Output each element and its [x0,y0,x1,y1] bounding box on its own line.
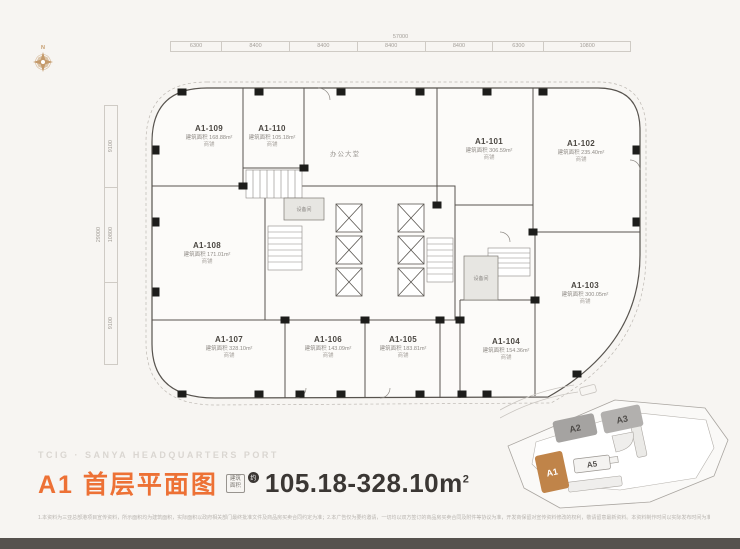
approx-badge: 约 [248,472,259,483]
bottom-bar [0,538,740,549]
unit-number: A1-108 [162,241,252,251]
unit-type: 商铺 [461,355,551,362]
page-title: A1 首层平面图 [38,465,218,501]
equipment-room-label: 设备间 [473,275,488,282]
brand-line: TCIG · SANYA HEADQUARTERS PORT [38,450,718,460]
unit-type: 商铺 [227,142,317,149]
unit-label-a1-102: A1-102 建筑面积 235.40m² 商铺 [536,139,626,164]
unit-area: 建筑面积 154.36m² [461,348,551,355]
unit-area: 建筑面积 235.40m² [536,150,626,157]
unit-label-a1-107: A1-107 建筑面积 328.10m² 商铺 [184,335,274,360]
unit-area: 建筑面积 328.10m² [184,346,274,353]
unit-label-a1-108: A1-108 建筑面积 171.01m² 商铺 [162,241,252,266]
unit-number: A1-110 [227,124,317,134]
unit-number: A1-101 [444,137,534,147]
lobby-label: 办公大堂 [330,149,360,158]
footer: TCIG · SANYA HEADQUARTERS PORT A1 首层平面图 … [38,450,718,521]
floor-plan-page: N 57000 6300 8400 8400 8400 8400 6300 10… [0,0,740,549]
unit-label-a1-101: A1-101 建筑面积 306.59m² 商铺 [444,137,534,162]
unit-type: 商铺 [184,353,274,360]
unit-area: 建筑面积 171.01m² [162,252,252,259]
unit-area: 建筑面积 300.05m² [540,292,630,299]
unit-label-a1-104: A1-104 建筑面积 154.36m² 商铺 [461,337,551,362]
unit-number: A1-106 [283,335,373,345]
unit-area: 建筑面积 306.59m² [444,148,534,155]
unit-number: A1-104 [461,337,551,347]
unit-type: 商铺 [540,299,630,306]
unit-label-a1-110: A1-110 建筑面积 105.18m² 商铺 [227,124,317,149]
area-range: 105.18-328.10m2 [265,468,469,499]
unit-area: 建筑面积 143.09m² [283,346,373,353]
unit-label-a1-103: A1-103 建筑面积 300.05m² 商铺 [540,281,630,306]
unit-number: A1-103 [540,281,630,291]
road-lines [500,384,597,418]
unit-number: A1-107 [184,335,274,345]
unit-label-a1-106: A1-106 建筑面积 143.09m² 商铺 [283,335,373,360]
unit-area: 建筑面积 105.18m² [227,135,317,142]
unit-type: 商铺 [444,155,534,162]
unit-number: A1-102 [536,139,626,149]
unit-type: 商铺 [283,353,373,360]
area-label-box: 建筑 面积 [226,474,245,493]
unit-type: 商铺 [162,259,252,266]
disclaimer: 1.本资料为三亚总部港项目宣传资料，所示面积均为建筑面积，实际面积以政府相关部门… [38,514,710,521]
equipment-room-label: 设备间 [296,206,311,213]
unit-type: 商铺 [536,157,626,164]
